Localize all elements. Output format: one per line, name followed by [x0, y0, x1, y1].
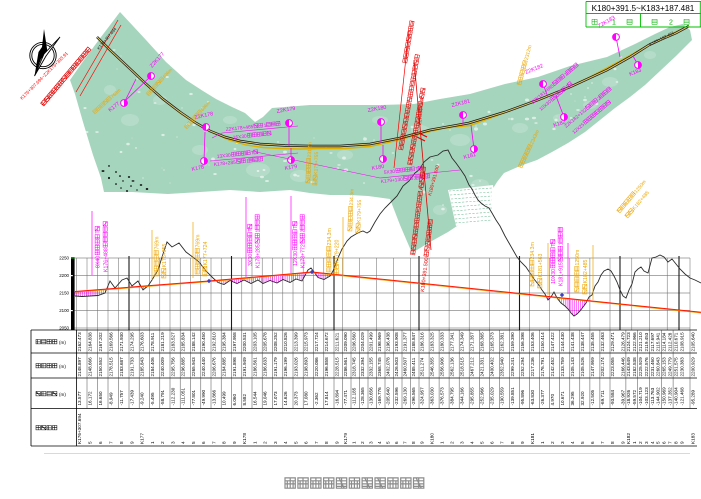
svg-text:2352.940: 2352.940 — [500, 357, 505, 377]
svg-text:2166.446: 2166.446 — [620, 357, 625, 377]
svg-text:5: 5 — [385, 441, 390, 444]
svg-text:6.060: 6.060 — [232, 394, 237, 406]
svg-text:2156.398: 2156.398 — [520, 332, 525, 352]
svg-text:1: 1 — [351, 441, 356, 444]
svg-text:K179+220: K179+220 — [335, 239, 341, 263]
svg-text:-111.051: -111.051 — [181, 388, 186, 406]
svg-text:-77.471: -77.471 — [343, 389, 348, 405]
svg-text:K181+915: K181+915 — [559, 262, 565, 286]
svg-text:3: 3 — [170, 441, 175, 444]
svg-text:-344.166: -344.166 — [460, 387, 465, 406]
svg-text:2114.184: 2114.184 — [662, 332, 667, 351]
svg-text:2318.745: 2318.745 — [351, 357, 356, 377]
svg-text:2295.756: 2295.756 — [170, 357, 175, 377]
svg-text:4: 4 — [283, 441, 288, 444]
svg-text:2186.633: 2186.633 — [263, 357, 268, 377]
svg-text:2100: 2100 — [59, 308, 69, 313]
svg-text:3: 3 — [460, 441, 465, 444]
svg-text:9: 9 — [129, 441, 134, 444]
svg-text:5: 5 — [293, 441, 298, 444]
svg-text:17.080: 17.080 — [304, 391, 309, 405]
svg-text:-232.596: -232.596 — [394, 387, 399, 406]
svg-text:2518.515: 2518.515 — [460, 357, 465, 377]
svg-text:6: 6 — [590, 441, 595, 444]
svg-text:-13.866: -13.866 — [211, 389, 216, 405]
svg-text:2147.959: 2147.959 — [590, 357, 595, 377]
svg-text:2485.411: 2485.411 — [411, 357, 416, 376]
svg-text:-2.362: -2.362 — [314, 392, 319, 405]
svg-text:2: 2 — [449, 441, 454, 444]
svg-text:-150.969: -150.969 — [662, 387, 667, 406]
svg-text:2299.241: 2299.241 — [510, 357, 515, 377]
svg-text:2201.499: 2201.499 — [368, 332, 373, 352]
svg-text:-12.505: -12.505 — [590, 389, 595, 405]
svg-text:2171.357: 2171.357 — [470, 332, 475, 352]
svg-text:2126.479: 2126.479 — [620, 332, 625, 352]
svg-text:2150.552: 2150.552 — [98, 357, 103, 377]
svg-text:-190.559: -190.559 — [500, 387, 505, 406]
svg-text:-5.495: -5.495 — [150, 392, 155, 405]
svg-text:K178+285: K178+285 — [256, 244, 262, 268]
svg-text:-93.584: -93.584 — [610, 389, 615, 405]
svg-text:-11.757: -11.757 — [119, 390, 124, 406]
svg-text:1: 1 — [439, 441, 444, 444]
svg-text:3: 3 — [560, 441, 565, 444]
svg-text:9: 9 — [419, 441, 424, 444]
svg-text:9: 9 — [334, 441, 339, 444]
svg-text:2191.898: 2191.898 — [232, 357, 237, 377]
svg-text:2121.210: 2121.210 — [638, 332, 643, 352]
svg-text:2562.136: 2562.136 — [449, 357, 454, 377]
svg-text:-39.967: -39.967 — [620, 389, 625, 405]
svg-text:-8.949: -8.949 — [108, 392, 113, 405]
svg-text:9: 9 — [679, 441, 684, 444]
svg-text:17.814: 17.814 — [324, 391, 329, 405]
svg-text:2122.966: 2122.966 — [632, 332, 637, 352]
svg-text:5: 5 — [480, 441, 485, 444]
svg-text:2148.666: 2148.666 — [87, 357, 92, 377]
svg-text:2115.941: 2115.941 — [656, 332, 661, 351]
svg-text:14.626: 14.626 — [283, 391, 288, 405]
svg-text:1: 1 — [256, 230, 262, 233]
svg-text:2168.365: 2168.365 — [480, 332, 485, 352]
svg-text:K176+307.694: K176+307.694 — [77, 413, 82, 444]
svg-text:2249.779: 2249.779 — [668, 357, 673, 377]
svg-text:2193.026: 2193.026 — [293, 357, 298, 377]
svg-text:2105.640: 2105.640 — [690, 332, 695, 352]
svg-text:2182.538: 2182.538 — [632, 357, 637, 377]
svg-text:2222.576: 2222.576 — [644, 357, 649, 377]
svg-text:-18.926: -18.926 — [626, 389, 631, 405]
svg-text:7: 7 — [108, 441, 113, 444]
svg-text:234.3m: 234.3m — [349, 189, 356, 206]
svg-text:2186.561: 2186.561 — [252, 357, 257, 377]
svg-text:-324.957: -324.957 — [419, 387, 424, 406]
svg-text:2185.834: 2185.834 — [181, 332, 186, 352]
svg-text:2206.676: 2206.676 — [211, 357, 216, 377]
svg-text:2178.515: 2178.515 — [108, 357, 113, 377]
svg-text:2165.373: 2165.373 — [490, 332, 495, 352]
svg-text:2144.430: 2144.430 — [560, 332, 565, 352]
svg-text:K179+755: K179+755 — [313, 152, 320, 175]
svg-text:2421.331: 2421.331 — [480, 357, 485, 377]
svg-text:2190.450: 2190.450 — [201, 332, 206, 352]
svg-text:2260.843: 2260.843 — [656, 357, 661, 377]
svg-text:3X30: 3X30 — [248, 254, 254, 266]
svg-text:2164.838: 2164.838 — [87, 332, 92, 352]
svg-text:16.650: 16.650 — [98, 391, 103, 405]
svg-text:2: 2 — [263, 441, 268, 444]
svg-text:2174.349: 2174.349 — [460, 332, 465, 352]
svg-text:2124.723: 2124.723 — [626, 332, 631, 352]
svg-text:3: 3 — [273, 441, 278, 444]
svg-text:1: 1 — [612, 20, 616, 27]
svg-text:(m): (m) — [59, 364, 66, 369]
svg-text:-130.656: -130.656 — [368, 387, 373, 406]
svg-text:2132.463: 2132.463 — [600, 332, 605, 352]
svg-text:9: 9 — [620, 441, 625, 444]
svg-text:-169.776: -169.776 — [377, 387, 382, 406]
svg-text:(m): (m) — [59, 392, 66, 397]
svg-text:2368.745: 2368.745 — [377, 357, 382, 377]
svg-text:2: 2 — [669, 20, 673, 27]
svg-text:2220.086: 2220.086 — [314, 357, 319, 377]
svg-text:6: 6 — [662, 441, 667, 444]
svg-text:8: 8 — [610, 441, 615, 444]
svg-text:K177+724: K177+724 — [203, 241, 209, 265]
svg-text:5X30: 5X30 — [384, 169, 396, 176]
svg-text:2198.969: 2198.969 — [377, 332, 382, 352]
svg-text:4.970: 4.970 — [550, 394, 555, 406]
svg-text:16.172: 16.172 — [87, 391, 92, 405]
svg-text:5: 5 — [580, 441, 585, 444]
svg-text:2: 2 — [360, 441, 365, 444]
svg-text:K180: K180 — [429, 433, 434, 444]
svg-text:16.544: 16.544 — [252, 391, 257, 405]
svg-text:2162.473: 2162.473 — [77, 332, 82, 352]
svg-text:2181.219: 2181.219 — [160, 332, 165, 352]
svg-text:-144.902: -144.902 — [656, 387, 661, 406]
svg-text:K182: K182 — [626, 433, 631, 444]
svg-text:32.920: 32.920 — [580, 391, 585, 405]
svg-text:8: 8 — [222, 441, 227, 444]
svg-text:2426.503: 2426.503 — [394, 357, 399, 377]
svg-text:769m: 769m — [196, 235, 202, 248]
svg-text:13.577: 13.577 — [77, 391, 82, 405]
svg-text:5: 5 — [87, 441, 92, 444]
svg-text:-9.240: -9.240 — [140, 392, 145, 405]
svg-text:2148.897: 2148.897 — [77, 357, 82, 377]
svg-text:4: 4 — [377, 441, 382, 444]
svg-text:1: 1 — [150, 441, 155, 444]
svg-text:2546.355: 2546.355 — [429, 357, 434, 377]
svg-text:6: 6 — [201, 441, 206, 444]
svg-text:19.046: 19.046 — [263, 391, 268, 405]
svg-text:2214.672: 2214.672 — [324, 332, 329, 352]
svg-text:2203.105: 2203.105 — [252, 332, 257, 352]
svg-text:2265.153: 2265.153 — [662, 357, 667, 377]
svg-text:6: 6 — [304, 441, 309, 444]
svg-text:8X40: 8X40 — [96, 256, 102, 268]
svg-text:12X30: 12X30 — [293, 251, 299, 266]
svg-text:2332.155: 2332.155 — [368, 357, 373, 377]
svg-text:2193.908: 2193.908 — [394, 332, 399, 352]
svg-text:-376.573: -376.573 — [439, 387, 444, 406]
svg-text:8: 8 — [119, 441, 124, 444]
svg-text:2191.377: 2191.377 — [402, 332, 407, 352]
svg-text:2192.810: 2192.810 — [211, 332, 216, 352]
svg-text:2159.390: 2159.390 — [510, 332, 515, 352]
svg-text:4: 4 — [181, 441, 186, 444]
svg-text:769m: 769m — [155, 237, 161, 250]
svg-text:20.373: 20.373 — [293, 391, 298, 405]
svg-text:2231.460: 2231.460 — [650, 357, 655, 377]
svg-text:2105.143: 2105.143 — [570, 357, 575, 377]
svg-text:2150: 2150 — [59, 291, 69, 296]
svg-text:-49.990: -49.990 — [201, 389, 206, 405]
svg-text:2191.733: 2191.733 — [129, 357, 134, 377]
svg-text:2196.438: 2196.438 — [385, 332, 390, 352]
svg-text:2141.438: 2141.438 — [570, 332, 575, 352]
svg-text:-295.855: -295.855 — [470, 387, 475, 406]
svg-text:2332.394: 2332.394 — [360, 357, 365, 377]
svg-text:6: 6 — [490, 441, 495, 444]
svg-text:2250: 2250 — [59, 256, 69, 261]
svg-text:2209.090: 2209.090 — [343, 332, 348, 352]
svg-text:2167.202: 2167.202 — [98, 332, 103, 352]
svg-text:36.295: 36.295 — [570, 391, 575, 405]
svg-text:-140.904: -140.904 — [673, 387, 678, 406]
svg-text:-137.352: -137.352 — [668, 387, 673, 406]
svg-text:7: 7 — [211, 441, 216, 444]
svg-text:2230.383: 2230.383 — [679, 357, 684, 377]
svg-text:2211.621: 2211.621 — [334, 332, 339, 351]
svg-text:2251.575: 2251.575 — [673, 357, 678, 377]
svg-text:3: 3 — [644, 441, 649, 444]
svg-text:2191.949: 2191.949 — [242, 357, 247, 377]
svg-text:2117.697: 2117.697 — [650, 332, 655, 351]
svg-text:2129.471: 2129.471 — [610, 332, 615, 352]
svg-text:-59.572: -59.572 — [632, 389, 637, 405]
svg-text:2180.333: 2180.333 — [439, 332, 444, 352]
svg-text:2184.406: 2184.406 — [150, 357, 155, 377]
svg-text:2228.515: 2228.515 — [334, 357, 339, 377]
svg-text:2217.236: 2217.236 — [530, 357, 535, 377]
svg-text:2402.078: 2402.078 — [385, 357, 390, 377]
svg-text:2: 2 — [638, 441, 643, 444]
svg-text:K176+955: K176+955 — [162, 243, 168, 267]
svg-text:2184.885: 2184.885 — [222, 357, 227, 377]
svg-text:2177.341: 2177.341 — [449, 332, 454, 352]
svg-text:-252.966: -252.966 — [480, 387, 485, 406]
svg-text:-363.030: -363.030 — [429, 387, 434, 406]
svg-text:2197.958: 2197.958 — [232, 332, 237, 352]
svg-text:1: 1 — [252, 441, 257, 444]
svg-text:8: 8 — [324, 441, 329, 444]
svg-text:2188.847: 2188.847 — [411, 332, 416, 352]
svg-text:2169.566: 2169.566 — [108, 332, 113, 352]
svg-text:2110.671: 2110.671 — [673, 332, 678, 351]
svg-text:2135.455: 2135.455 — [590, 332, 595, 352]
svg-text:2240.009: 2240.009 — [160, 357, 165, 377]
svg-text:2286.561: 2286.561 — [343, 357, 348, 377]
svg-text:K183: K183 — [690, 433, 695, 444]
svg-text:2188.142: 2188.142 — [191, 332, 196, 352]
svg-text:2556.906: 2556.906 — [439, 357, 444, 377]
svg-text:234.3m: 234.3m — [327, 228, 333, 245]
svg-text:2119.453: 2119.453 — [644, 332, 649, 351]
svg-text:2467.212: 2467.212 — [470, 357, 475, 377]
svg-text:2200.929: 2200.929 — [690, 357, 695, 377]
svg-text:-95.896: -95.896 — [520, 389, 525, 405]
svg-text:-235.029: -235.029 — [490, 387, 495, 406]
svg-text:2213.399: 2213.399 — [293, 332, 298, 352]
svg-text:2183.527: 2183.527 — [170, 332, 175, 352]
svg-text:2174.295: 2174.295 — [129, 332, 134, 352]
svg-text:-69.711: -69.711 — [600, 390, 605, 406]
svg-text:-103.123: -103.123 — [644, 387, 649, 406]
svg-text:2171.930: 2171.930 — [119, 332, 124, 352]
svg-text:-104.719: -104.719 — [638, 387, 643, 406]
svg-text:2147.422: 2147.422 — [550, 332, 555, 352]
svg-text:-384.795: -384.795 — [449, 387, 454, 406]
svg-text:2210.826: 2210.826 — [283, 332, 288, 352]
svg-text:7: 7 — [314, 441, 319, 444]
svg-text:2153.406: 2153.406 — [530, 332, 535, 352]
svg-text:2312m: 2312m — [307, 142, 314, 157]
svg-text:K181: K181 — [530, 433, 535, 444]
svg-text:9: 9 — [520, 441, 525, 444]
svg-text:2225.929: 2225.929 — [638, 357, 643, 377]
svg-text:5: 5 — [656, 441, 661, 444]
svg-text:2196.199: 2196.199 — [283, 357, 288, 377]
svg-text:2105.526: 2105.526 — [580, 357, 585, 377]
svg-text:9: 9 — [232, 441, 237, 444]
svg-text:2200: 2200 — [59, 273, 69, 278]
svg-text:-112.230: -112.230 — [170, 387, 175, 405]
svg-text:8: 8 — [510, 441, 515, 444]
svg-text:2185.843: 2185.843 — [140, 357, 145, 377]
svg-text:234.3m: 234.3m — [530, 242, 536, 259]
svg-text:K182+485: K182+485 — [583, 259, 589, 283]
svg-text:2: 2 — [301, 230, 307, 233]
svg-text:8: 8 — [673, 441, 678, 444]
svg-text:5: 5 — [191, 441, 196, 444]
svg-text:2217.724: 2217.724 — [314, 332, 319, 352]
svg-text:10.671: 10.671 — [560, 391, 565, 405]
svg-text:-112.185: -112.185 — [351, 387, 356, 405]
svg-text:-77.801: -77.801 — [191, 389, 196, 405]
svg-text:2191.179: 2191.179 — [273, 357, 278, 377]
svg-text:K181+563: K181+563 — [538, 253, 544, 277]
svg-text:2460.507: 2460.507 — [402, 357, 407, 377]
svg-text:2265.943: 2265.943 — [191, 357, 196, 377]
svg-text:2198.893: 2198.893 — [304, 357, 309, 377]
svg-text:-128.365: -128.365 — [360, 387, 365, 406]
svg-text:-121.468: -121.468 — [679, 387, 684, 406]
svg-text:2204.029: 2204.029 — [360, 332, 365, 352]
svg-text:2143.649: 2143.649 — [626, 357, 631, 377]
svg-text:K176+488: K176+488 — [104, 248, 110, 272]
svg-text:4: 4 — [470, 441, 475, 444]
svg-text:1250m: 1250m — [575, 250, 581, 266]
svg-text:-58.791: -58.791 — [160, 389, 165, 405]
svg-text:K180+391.5~K183+187.481: K180+391.5~K183+187.481 — [592, 4, 695, 13]
svg-text:2133.759: 2133.759 — [560, 357, 565, 377]
svg-text:17.073: 17.073 — [273, 391, 278, 405]
svg-text:K178+772: K178+772 — [301, 244, 307, 268]
svg-text:-205.640: -205.640 — [385, 387, 390, 406]
svg-text:10.499: 10.499 — [222, 391, 227, 405]
svg-text:2400.402: 2400.402 — [490, 357, 495, 377]
svg-text:8: 8 — [411, 441, 416, 444]
svg-text:-269.130: -269.130 — [402, 387, 407, 406]
svg-text:6: 6 — [98, 441, 103, 444]
svg-text:2252.294: 2252.294 — [520, 357, 525, 377]
svg-text:1: 1 — [559, 242, 565, 245]
svg-text:-113.763: -113.763 — [650, 387, 655, 405]
svg-text:-296.565: -296.565 — [411, 387, 416, 406]
svg-text:-95.289: -95.289 — [690, 389, 695, 405]
svg-text:2183.687: 2183.687 — [119, 357, 124, 377]
svg-text:7: 7 — [668, 441, 673, 444]
svg-text:2176.603: 2176.603 — [140, 332, 145, 352]
svg-text:(m): (m) — [59, 340, 66, 345]
svg-text:K179+755: K179+755 — [356, 200, 363, 223]
svg-text:3: 3 — [368, 441, 373, 444]
svg-text:-16.894: -16.894 — [334, 389, 339, 405]
svg-text:1: 1 — [540, 441, 545, 444]
svg-text:2206.560: 2206.560 — [351, 332, 356, 352]
svg-text:2202.174: 2202.174 — [600, 357, 605, 377]
svg-text:2150.414: 2150.414 — [540, 332, 545, 352]
svg-text:7: 7 — [600, 441, 605, 444]
svg-text:2108.915: 2108.915 — [679, 332, 684, 352]
svg-text:2: 2 — [160, 441, 165, 444]
svg-text:2296.885: 2296.885 — [181, 357, 186, 377]
svg-text:10X30: 10X30 — [551, 269, 557, 284]
svg-text:2138.447: 2138.447 — [580, 332, 585, 352]
svg-text:1: 1 — [632, 441, 637, 444]
svg-text:K179: K179 — [343, 433, 348, 444]
svg-text:2195.384: 2195.384 — [222, 332, 227, 352]
svg-text:4: 4 — [570, 441, 575, 444]
svg-text:2178.911: 2178.911 — [150, 332, 155, 351]
svg-text:7: 7 — [402, 441, 407, 444]
svg-text:-63.830: -63.830 — [530, 389, 535, 405]
svg-text:2196.858: 2196.858 — [324, 357, 329, 377]
svg-text:2208.252: 2208.252 — [273, 332, 278, 352]
svg-text:K177: K177 — [140, 433, 145, 444]
svg-text:6: 6 — [394, 441, 399, 444]
svg-text:8.582: 8.582 — [242, 394, 247, 406]
svg-text:2: 2 — [550, 441, 555, 444]
svg-text:2240.440: 2240.440 — [201, 357, 206, 377]
svg-text:2142.452: 2142.452 — [550, 357, 555, 377]
svg-text:2176.791: 2176.791 — [540, 357, 545, 377]
svg-text:2200.531: 2200.531 — [242, 332, 247, 352]
svg-text:-17.439: -17.439 — [129, 389, 134, 405]
svg-text:2186.316: 2186.316 — [419, 332, 424, 352]
svg-text:4: 4 — [650, 441, 655, 444]
svg-text:2183.325: 2183.325 — [429, 332, 434, 352]
svg-text:2215.973: 2215.973 — [304, 332, 309, 352]
svg-text:-26.377: -26.377 — [540, 389, 545, 405]
svg-text:2511.274: 2511.274 — [419, 357, 424, 376]
svg-text:7: 7 — [500, 441, 505, 444]
svg-text:2162.381: 2162.381 — [500, 332, 505, 352]
svg-text:K178: K178 — [242, 433, 247, 444]
